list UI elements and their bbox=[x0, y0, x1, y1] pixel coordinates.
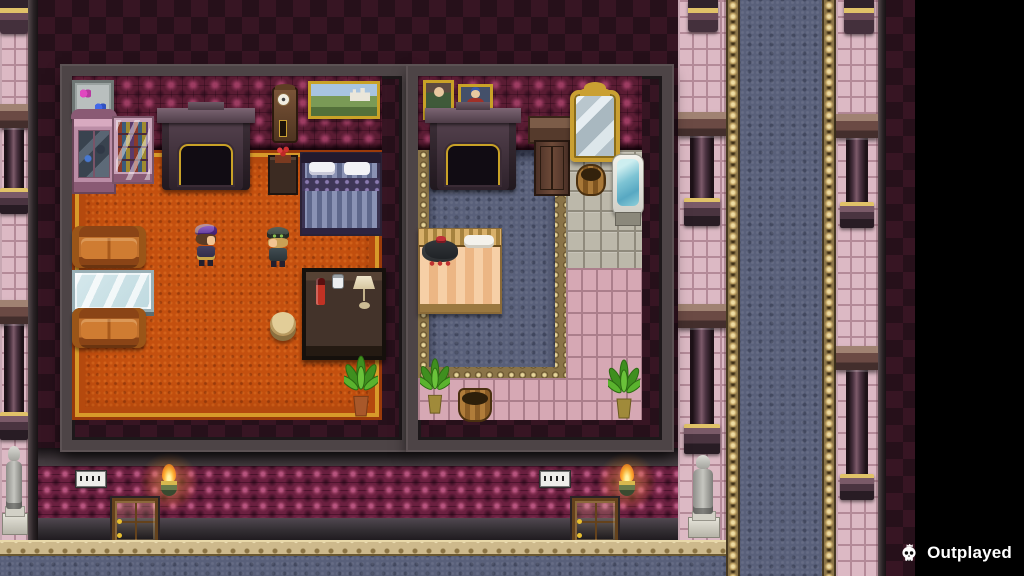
hall-floor bbox=[0, 556, 726, 576]
pillar bbox=[4, 324, 24, 414]
wall-sign-left[interactable] bbox=[76, 471, 106, 487]
diamond-wall-strip bbox=[886, 0, 915, 576]
knight-statue-hall bbox=[686, 452, 720, 538]
red-decanter bbox=[316, 278, 325, 305]
wall-sign-right[interactable] bbox=[540, 471, 570, 487]
pillar-lintel bbox=[0, 104, 28, 128]
hair-bow bbox=[436, 236, 446, 243]
pillar-base bbox=[840, 474, 874, 500]
pillar bbox=[688, 0, 718, 32]
door-right[interactable] bbox=[572, 498, 618, 544]
couch-bottom bbox=[72, 308, 146, 348]
npc-goggle-cap[interactable] bbox=[266, 227, 290, 267]
lamp-shade bbox=[353, 276, 375, 289]
pillar bbox=[690, 328, 714, 426]
face bbox=[269, 239, 277, 247]
side-desk bbox=[302, 268, 386, 360]
plant-icon bbox=[420, 352, 450, 418]
bathtub[interactable] bbox=[612, 154, 644, 216]
plant-icon bbox=[608, 356, 640, 420]
stool bbox=[270, 312, 296, 336]
torso bbox=[197, 246, 215, 260]
fireplace bbox=[430, 118, 516, 190]
pillar-lintel bbox=[836, 114, 878, 138]
fireplace bbox=[162, 118, 250, 190]
pillar-base bbox=[0, 412, 28, 440]
torch-right bbox=[614, 464, 640, 498]
hair bbox=[422, 240, 458, 262]
potted-plant-left bbox=[420, 352, 450, 418]
path-border-left bbox=[726, 0, 740, 576]
mantel-cap bbox=[188, 102, 223, 110]
glass-coffee-table bbox=[72, 270, 154, 312]
pillar bbox=[4, 128, 24, 190]
wall-frame-right bbox=[878, 0, 886, 576]
pillar-base bbox=[684, 424, 720, 454]
plant-icon bbox=[344, 352, 378, 418]
pillar bbox=[690, 136, 714, 200]
letterbox-right bbox=[915, 0, 1024, 576]
double-bed[interactable] bbox=[300, 152, 382, 236]
corridor-path bbox=[740, 0, 822, 576]
room-bedroom bbox=[408, 66, 672, 450]
flower-table bbox=[268, 155, 298, 195]
curio-cabinet bbox=[72, 114, 116, 194]
torch-left bbox=[156, 464, 182, 498]
pillar bbox=[846, 138, 868, 204]
path-border-right bbox=[822, 0, 836, 576]
potted-plant-right bbox=[608, 356, 640, 420]
room-parlor bbox=[62, 66, 412, 450]
door-left[interactable] bbox=[112, 498, 158, 544]
legs bbox=[199, 260, 213, 266]
wall-frame-left bbox=[28, 0, 38, 576]
table-lamp bbox=[353, 276, 375, 309]
pillar-lintel bbox=[678, 304, 726, 328]
landscape-painting bbox=[308, 81, 380, 119]
pillar bbox=[846, 370, 868, 476]
potted-plant bbox=[344, 352, 378, 418]
pillar bbox=[844, 0, 874, 34]
basket bbox=[576, 164, 606, 196]
skull-crown-icon bbox=[898, 541, 920, 565]
watermark-label: Outplayed bbox=[927, 543, 1012, 563]
lamp-stem bbox=[363, 289, 365, 301]
hall-wall-top-edge bbox=[38, 448, 678, 466]
outplayed-watermark: Outplayed bbox=[898, 541, 1012, 565]
bed-quilt-band bbox=[302, 178, 380, 191]
standing-mirror bbox=[570, 90, 620, 162]
wooden-bucket bbox=[458, 388, 492, 422]
armoire bbox=[534, 140, 570, 196]
glasses bbox=[428, 261, 451, 266]
torso bbox=[269, 248, 287, 261]
pillar-base bbox=[0, 188, 28, 214]
mantel-cap bbox=[456, 102, 490, 110]
knight-statue-left bbox=[0, 443, 28, 535]
pillar-lintel bbox=[678, 112, 726, 136]
single-bed[interactable] bbox=[418, 228, 502, 314]
pillar-lintel bbox=[0, 300, 28, 324]
npc-sleeping[interactable] bbox=[422, 236, 458, 266]
npc-purple-hat[interactable] bbox=[194, 224, 218, 266]
pillar-base bbox=[840, 202, 874, 228]
pillar bbox=[0, 0, 28, 34]
couch-top bbox=[72, 226, 146, 268]
game-viewport[interactable]: Outplayed bbox=[0, 0, 1024, 576]
lamp-base bbox=[359, 302, 370, 309]
pillar-lintel bbox=[836, 346, 878, 370]
hall-gold-trim bbox=[0, 540, 726, 556]
legs bbox=[271, 261, 285, 267]
pillar-base bbox=[684, 198, 720, 226]
bookshelf[interactable] bbox=[112, 116, 154, 184]
clock-pediment bbox=[275, 84, 295, 90]
lantern bbox=[332, 274, 344, 289]
grandfather-clock bbox=[272, 87, 298, 143]
face bbox=[207, 236, 215, 245]
